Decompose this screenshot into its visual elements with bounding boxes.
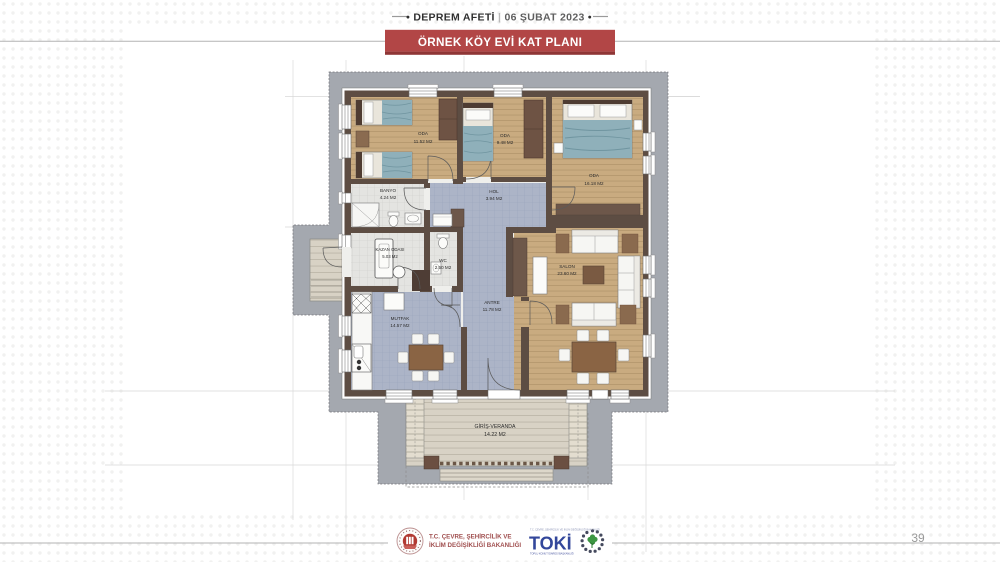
svg-text:16.18 M2: 16.18 M2: [584, 181, 604, 186]
svg-text:TOPLU KONUT İDARESİ BAŞKANLIĞI: TOPLU KONUT İDARESİ BAŞKANLIĞI: [530, 553, 574, 556]
svg-text:39: 39: [911, 531, 925, 545]
svg-text:4.24 M2: 4.24 M2: [380, 195, 397, 200]
svg-text:23.60 M2: 23.60 M2: [557, 271, 577, 276]
svg-text:MUTFAK: MUTFAK: [391, 316, 411, 321]
svg-text:ODA: ODA: [418, 131, 429, 136]
svg-text:WC: WC: [439, 258, 447, 263]
svg-text:KAZAN ODASI: KAZAN ODASI: [376, 247, 405, 252]
svg-text:ANTRE: ANTRE: [484, 300, 500, 305]
svg-text:SALON: SALON: [559, 264, 575, 269]
svg-text:11.52 M2: 11.52 M2: [414, 139, 433, 144]
svg-text:T.C. ÇEVRE, ŞEHİRCİLİK VE İKLİ: T.C. ÇEVRE, ŞEHİRCİLİK VE İKLİM DEĞİŞİKL…: [530, 529, 600, 532]
svg-text:2.50 M2: 2.50 M2: [435, 265, 452, 270]
svg-text:TOKİ: TOKİ: [529, 534, 572, 554]
svg-text:9.48 M2: 9.48 M2: [497, 140, 514, 145]
svg-text:11.78 M2: 11.78 M2: [483, 307, 502, 312]
svg-text:3.94 M2: 3.94 M2: [486, 196, 503, 201]
svg-text:ÖRNEK KÖY EVİ KAT PLANI: ÖRNEK KÖY EVİ KAT PLANI: [418, 36, 582, 49]
svg-text:ODA: ODA: [500, 133, 511, 138]
svg-text:BANYO: BANYO: [380, 188, 397, 193]
svg-text:GİRİŞ-VERANDA: GİRİŞ-VERANDA: [475, 423, 516, 430]
svg-text:HOL: HOL: [489, 189, 499, 194]
svg-text:T.C. ÇEVRE, ŞEHİRCİLİK VE: T.C. ÇEVRE, ŞEHİRCİLİK VE: [429, 534, 512, 541]
svg-text:14.57 M2: 14.57 M2: [390, 323, 410, 328]
svg-text:ODA: ODA: [589, 173, 600, 178]
svg-text:14.22 M2: 14.22 M2: [484, 432, 506, 438]
svg-text:• DEPREM AFETİ | 06 ŞUBAT 2023: • DEPREM AFETİ | 06 ŞUBAT 2023 •: [406, 11, 592, 24]
svg-text:5.03 M2: 5.03 M2: [382, 254, 398, 259]
svg-text:İKLİM DEĞİŞİKLİĞİ BAKANLIĞI: İKLİM DEĞİŞİKLİĞİ BAKANLIĞI: [429, 541, 521, 549]
